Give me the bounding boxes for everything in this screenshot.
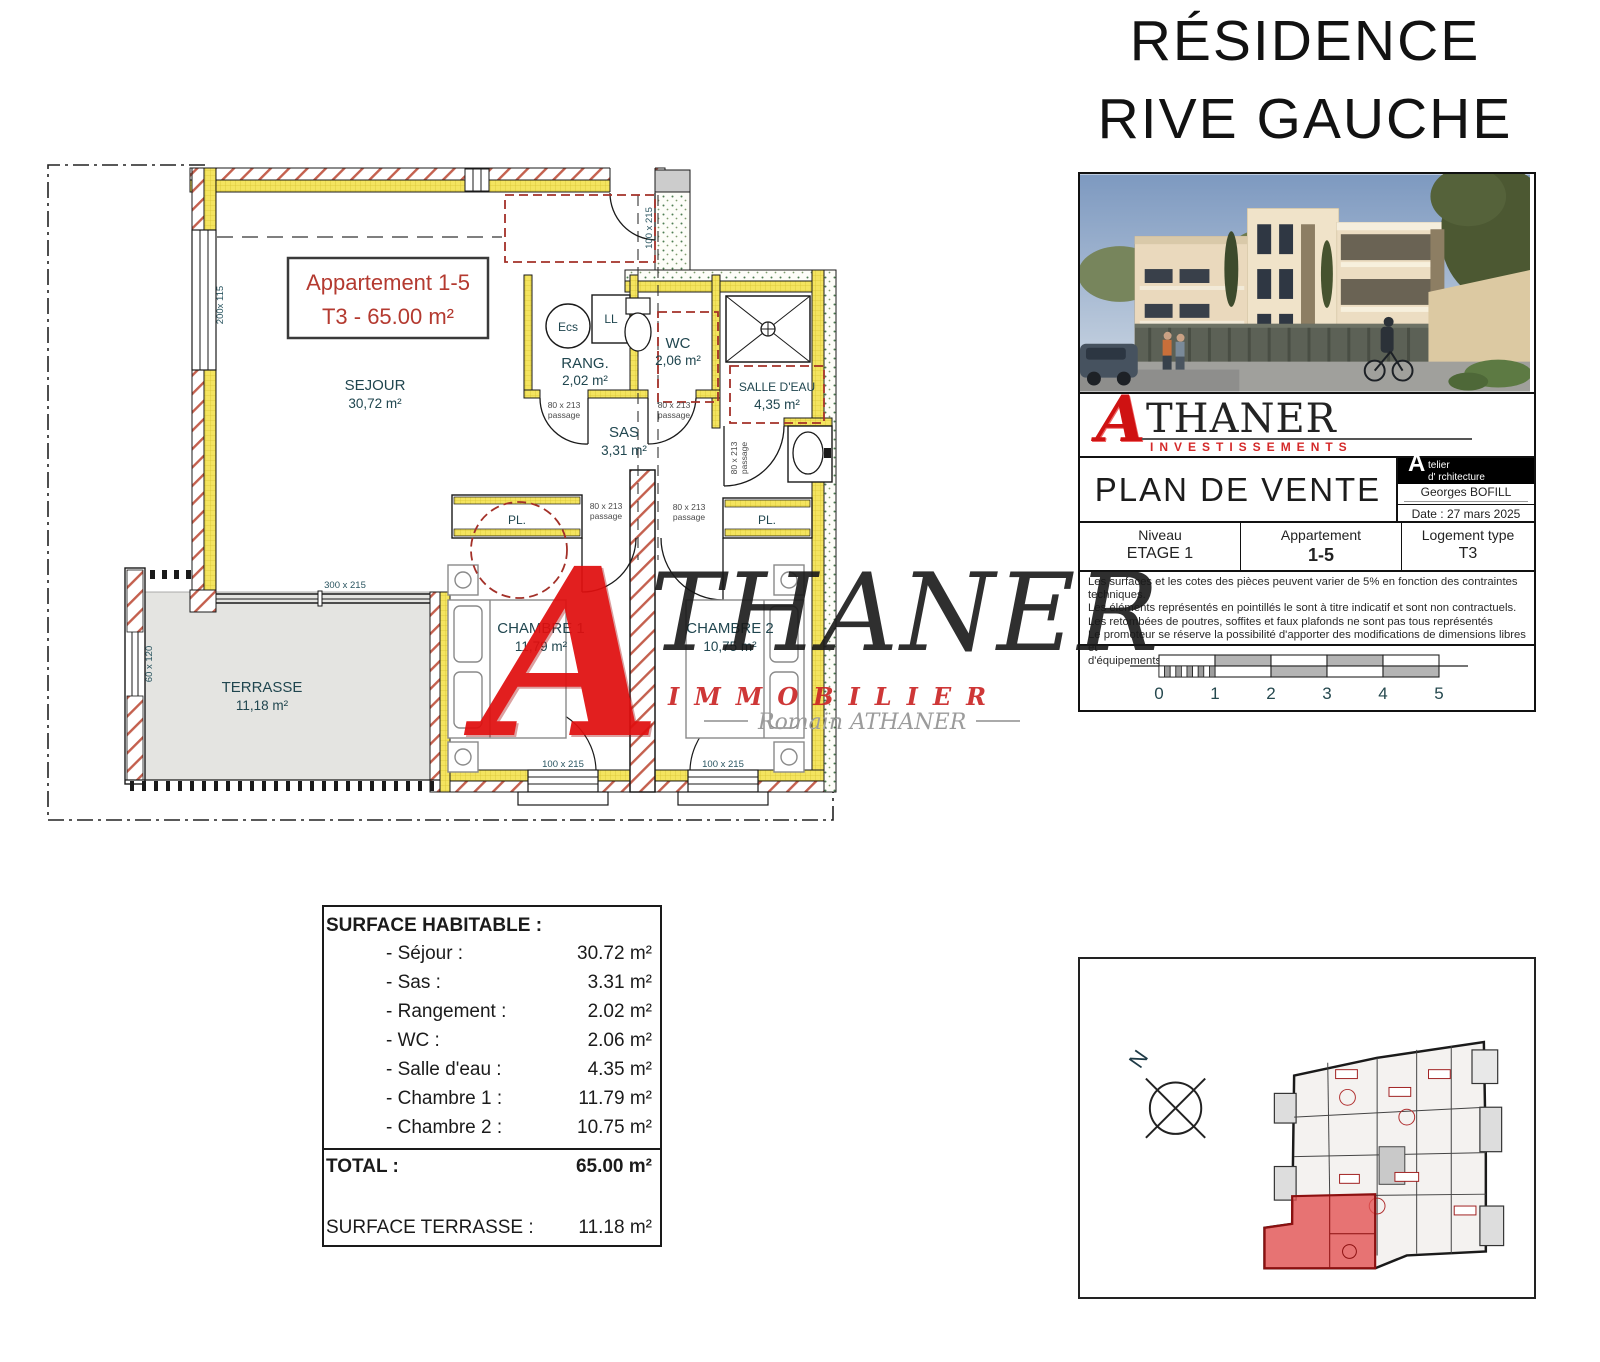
architect-stamp: A telier d' rchitecture Georges BOFILL D… <box>1396 458 1534 521</box>
passage-rang-size: 80 x 213 <box>548 400 581 410</box>
disclaimer-text: Les surfaces et les cotes des pièces peu… <box>1080 572 1534 646</box>
closet-right: PL. <box>723 498 812 538</box>
passage-wc-word: passage <box>658 410 690 420</box>
stamp-line2: d' rchitecture <box>1428 472 1534 484</box>
disclaimer-line2: Les éléments représentés en pointillés l… <box>1088 602 1526 615</box>
plan-fields: Niveau ETAGE 1 Appartement 1-5 Logement … <box>1080 523 1534 572</box>
passage-rang-word: passage <box>548 410 580 420</box>
area-chambre1: 11,79 m² <box>515 639 568 654</box>
table-row: - Chambre 1 :11.79 m² <box>324 1084 660 1113</box>
label-chambre1: CHAMBRE 1 <box>497 620 585 637</box>
field-appartement-label: Appartement <box>1241 527 1401 543</box>
field-appartement: Appartement 1-5 <box>1241 523 1402 570</box>
athaner-investissements-logo: A THANER INVESTISSEMENTS <box>1080 394 1534 458</box>
site-plan-building <box>1264 1042 1503 1268</box>
building-render-photo <box>1080 174 1534 394</box>
residence-title: RÉSIDENCE RIVE GAUCHE <box>1062 2 1548 158</box>
label-terrasse: TERRASSE <box>222 679 303 696</box>
area-chambre2: 10,75 m² <box>703 639 757 654</box>
field-logement-label: Logement type <box>1402 527 1534 543</box>
apartment-label-line2: T3 - 65.00 m² <box>322 304 454 329</box>
scale-5: 5 <box>1434 684 1443 703</box>
field-logement-value: T3 <box>1402 545 1534 563</box>
label-ll: LL <box>604 312 618 326</box>
scale-3: 3 <box>1322 684 1331 703</box>
passage-wc-size: 80 x 213 <box>658 400 691 410</box>
row-chambre2-value: 10.75 m² <box>560 1117 652 1139</box>
table-row: - Séjour :30.72 m² <box>324 939 660 968</box>
passage-ch1-size: 80 x 213 <box>590 501 623 511</box>
table-row: - WC :2.06 m² <box>324 1026 660 1055</box>
label-sejour: SEJOUR <box>345 377 406 394</box>
dim-door-entrance: 100 x 215 <box>644 207 655 249</box>
architect-name: Georges BOFILL <box>1398 484 1534 499</box>
field-niveau-label: Niveau <box>1080 527 1240 543</box>
site-key-plan: N <box>1078 957 1536 1299</box>
dim-terrace-side: 60 x 120 <box>144 646 155 682</box>
bed-chambre2 <box>686 565 804 772</box>
scale-bar: 0 1 2 3 4 5 <box>1080 646 1534 710</box>
passage-ch2-size: 80 x 213 <box>673 502 706 512</box>
title-block: A THANER INVESTISSEMENTS PLAN DE VENTE A… <box>1078 172 1536 712</box>
terrasse-label: SURFACE TERRASSE : <box>326 1217 578 1239</box>
logo-name-text: THANER <box>1146 396 1337 442</box>
doc-title: PLAN DE VENTE <box>1095 471 1381 509</box>
architect-address-microtext <box>1404 500 1528 503</box>
apartment-label-line1: Appartement 1-5 <box>306 270 470 295</box>
area-sejour: 30,72 m² <box>348 396 402 411</box>
passage-sde-word: passage <box>739 442 749 474</box>
table-row: - Sas :3.31 m² <box>324 968 660 997</box>
passage-ch1-word: passage <box>590 511 622 521</box>
field-appartement-value: 1-5 <box>1241 545 1401 566</box>
label-wc: WC <box>666 335 691 352</box>
logo-a-letter: A <box>1096 382 1146 457</box>
row-sejour-label: - Séjour : <box>386 943 560 965</box>
highlighted-apartment <box>1264 1194 1375 1268</box>
label-ecs: Ecs <box>558 320 578 334</box>
surface-table-title: SURFACE HABITABLE : <box>324 907 660 939</box>
row-salle-eau-value: 4.35 m² <box>560 1059 652 1081</box>
terrace-railing <box>130 781 434 791</box>
label-salle-eau: SALLE D'EAU <box>739 380 815 394</box>
row-chambre2-label: - Chambre 2 : <box>386 1117 560 1139</box>
row-sas-value: 3.31 m² <box>560 972 652 994</box>
row-rangement-value: 2.02 m² <box>560 1001 652 1023</box>
dim-window-left: 200x 115 <box>215 286 226 324</box>
row-rangement-label: - Rangement : <box>386 1001 560 1023</box>
label-rang: RANG. <box>561 355 609 372</box>
plan-date: Date : 27 mars 2025 <box>1398 504 1534 521</box>
field-niveau: Niveau ETAGE 1 <box>1080 523 1241 570</box>
logo-investissements-text: INVESTISSEMENTS <box>1150 440 1353 454</box>
stamp-line1: telier <box>1428 460 1534 472</box>
area-terrasse: 11,18 m² <box>236 698 289 713</box>
closet-right-label: PL. <box>758 513 776 527</box>
table-row: - Salle d'eau :4.35 m² <box>324 1055 660 1084</box>
area-salle-eau: 4,35 m² <box>754 397 800 412</box>
table-terrasse-row: SURFACE TERRASSE :11.18 m² <box>324 1215 660 1239</box>
row-chambre1-label: - Chambre 1 : <box>386 1088 560 1110</box>
dim-window-bedroom1: 100 x 215 <box>542 759 584 770</box>
dim-window-bedroom2: 100 x 215 <box>702 759 744 770</box>
label-chambre2: CHAMBRE 2 <box>686 620 774 637</box>
stamp-a-letter: A <box>1408 458 1425 470</box>
central-wall <box>630 470 655 792</box>
row-chambre1-value: 11.79 m² <box>560 1088 652 1110</box>
area-wc: 2,06 m² <box>655 353 701 368</box>
surface-table: SURFACE HABITABLE : - Séjour :30.72 m² -… <box>322 905 662 1247</box>
floor-plan: 300 x 215 60 x 120 <box>40 140 840 830</box>
total-label: TOTAL : <box>326 1156 576 1178</box>
passage-ch2-word: passage <box>673 512 705 522</box>
label-sas: SAS <box>609 424 639 441</box>
residence-title-line2: RIVE GAUCHE <box>1062 80 1548 158</box>
table-total-row: TOTAL :65.00 m² <box>324 1148 660 1180</box>
row-salle-eau-label: - Salle d'eau : <box>386 1059 560 1081</box>
scale-2: 2 <box>1266 684 1275 703</box>
floor-plan-drawing: 300 x 215 60 x 120 <box>40 140 840 830</box>
area-rang: 2,02 m² <box>562 373 608 388</box>
terrace-top-ticks <box>150 570 191 579</box>
dim-bay-window: 300 x 215 <box>324 580 366 591</box>
table-row: - Rangement :2.02 m² <box>324 997 660 1026</box>
scale-0: 0 <box>1154 684 1163 703</box>
disclaimer-line1: Les surfaces et les cotes des pièces peu… <box>1088 576 1526 602</box>
row-wc-value: 2.06 m² <box>560 1030 652 1052</box>
passage-sde-size: 80 x 213 <box>729 441 739 474</box>
row-sas-label: - Sas : <box>386 972 560 994</box>
plan-de-vente-page: 300 x 215 60 x 120 <box>0 0 1600 1362</box>
table-row: - Chambre 2 :10.75 m² <box>324 1113 660 1142</box>
north-compass: N <box>1124 1045 1206 1138</box>
field-logement-type: Logement type T3 <box>1402 523 1534 570</box>
disclaimer-line3: Les retombées de poutres, soffites et fa… <box>1088 616 1526 629</box>
residence-title-line1: RÉSIDENCE <box>1062 2 1548 80</box>
closet-left-label: PL. <box>508 513 526 527</box>
row-wc-label: - WC : <box>386 1030 560 1052</box>
area-sas: 3,31 m² <box>601 443 647 458</box>
total-value: 65.00 m² <box>576 1156 652 1178</box>
scale-4: 4 <box>1378 684 1387 703</box>
terrasse-value: 11.18 m² <box>578 1217 652 1239</box>
field-niveau-value: ETAGE 1 <box>1080 545 1240 563</box>
north-label: N <box>1124 1045 1153 1072</box>
row-sejour-value: 30.72 m² <box>560 943 652 965</box>
scale-1: 1 <box>1210 684 1219 703</box>
